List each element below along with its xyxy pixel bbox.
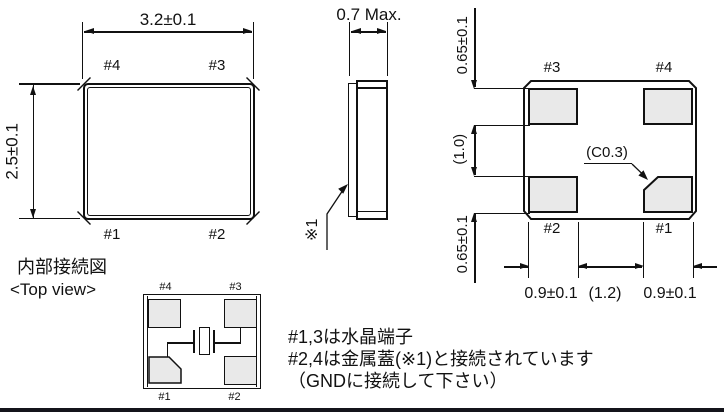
arrowhead bbox=[693, 263, 702, 269]
pad-label: #2 bbox=[220, 391, 250, 403]
side-view-body bbox=[356, 80, 388, 220]
extension-line bbox=[474, 213, 530, 214]
extension-line bbox=[19, 218, 80, 219]
arrowhead bbox=[471, 80, 477, 89]
chamfer-leader-line bbox=[632, 164, 644, 176]
dim-thickness: 0.7 Max. bbox=[319, 6, 419, 25]
pad-label: #1 bbox=[644, 221, 684, 238]
dimension-line bbox=[474, 8, 475, 87]
pad-label: #1 bbox=[150, 391, 180, 403]
side-view-seam-line bbox=[358, 87, 386, 89]
extension-line bbox=[19, 83, 80, 84]
pad-label: #3 bbox=[532, 60, 572, 77]
extension-line bbox=[349, 22, 350, 76]
extension-line bbox=[387, 22, 388, 76]
extension-line bbox=[474, 88, 530, 89]
internal-pad-2 bbox=[224, 356, 257, 385]
extension-line bbox=[643, 222, 644, 278]
bottom-separator-bar bbox=[0, 408, 724, 412]
pad-label: #3 bbox=[200, 58, 234, 75]
extension-line bbox=[474, 125, 530, 126]
arrowhead bbox=[352, 28, 361, 34]
note-line-1: #1,3は水晶端子 bbox=[288, 326, 594, 348]
note-line-3: （GNDに接続して下さい） bbox=[288, 370, 594, 392]
arrowhead bbox=[520, 263, 529, 269]
land-pad-2 bbox=[528, 176, 578, 213]
connection-wire bbox=[167, 342, 193, 344]
extension-line bbox=[578, 222, 579, 278]
terminal-notes: #1,3は水晶端子 #2,4は金属蓋(※1)と接続されています （GNDに接続し… bbox=[288, 326, 594, 392]
internal-diagram-title: 内部接続図 bbox=[17, 258, 107, 278]
dim-pad-height-bottom: 0.65±0.1 bbox=[455, 204, 472, 284]
arrowhead bbox=[471, 125, 477, 134]
chamfer-leader-underline bbox=[584, 163, 632, 164]
dim-pad-gap: (1.0) bbox=[452, 109, 469, 189]
chamfer-dim-label: (C0.3) bbox=[576, 145, 638, 162]
pad-label: #2 bbox=[200, 227, 234, 244]
arrowhead bbox=[635, 263, 644, 269]
extension-line bbox=[528, 222, 529, 278]
internal-pad-4 bbox=[148, 299, 181, 328]
extension-line bbox=[474, 176, 530, 177]
side-view-metal-lid bbox=[348, 83, 357, 217]
arrowhead bbox=[471, 213, 477, 222]
pad-label: #3 bbox=[221, 281, 251, 293]
arrowhead bbox=[243, 28, 252, 34]
crystal-plate-left bbox=[193, 330, 195, 353]
crystal-element bbox=[199, 327, 210, 355]
internal-pad-3 bbox=[224, 299, 257, 328]
dimension-line bbox=[33, 85, 34, 218]
pad-label: #4 bbox=[95, 58, 129, 75]
dimension-line bbox=[579, 266, 642, 267]
lid-reference-label: ※1 bbox=[304, 200, 322, 260]
package-outline-inner bbox=[87, 87, 251, 216]
pad-label: #4 bbox=[151, 281, 181, 293]
dim-pad-pitch: (1.2) bbox=[575, 285, 635, 303]
lid-leader-arrowhead bbox=[338, 184, 348, 194]
dim-height: 2.5±0.1 bbox=[4, 111, 23, 191]
arrowhead bbox=[471, 167, 477, 176]
land-pad-1-chamfered bbox=[644, 177, 692, 212]
extension-line bbox=[253, 22, 254, 79]
pad-label: #4 bbox=[644, 60, 684, 77]
extension-line bbox=[693, 222, 694, 278]
chamfer-leader-arrowhead bbox=[638, 170, 648, 180]
side-view-seam-line bbox=[358, 211, 386, 213]
connection-wire bbox=[167, 343, 169, 357]
arrowhead bbox=[30, 209, 36, 218]
dim-width: 3.2±0.1 bbox=[118, 11, 218, 30]
outline-drawing: 3.2±0.1 2.5±0.1 #4 #3 #1 #2 0.7 Max. ※1 … bbox=[0, 0, 724, 416]
dim-pad-width-right: 0.9±0.1 bbox=[630, 285, 710, 303]
internal-diagram-view-label: <Top view> bbox=[10, 281, 96, 300]
note-line-2: #2,4は金属蓋(※1)と接続されています bbox=[288, 348, 594, 370]
arrowhead bbox=[85, 28, 94, 34]
connection-wire bbox=[240, 327, 242, 343]
land-pad-4 bbox=[643, 88, 693, 125]
dim-pad-height-top: 0.65±0.1 bbox=[455, 5, 472, 85]
arrowhead bbox=[578, 263, 587, 269]
dimension-line bbox=[474, 214, 475, 283]
pad-label: #1 bbox=[95, 227, 129, 244]
arrowhead bbox=[30, 86, 36, 95]
pad-label: #2 bbox=[532, 221, 572, 238]
land-pad-3 bbox=[528, 88, 578, 125]
lid-leader-line bbox=[327, 187, 345, 250]
arrowhead bbox=[377, 28, 386, 34]
dimension-line bbox=[84, 31, 252, 32]
connection-wire bbox=[215, 342, 241, 344]
